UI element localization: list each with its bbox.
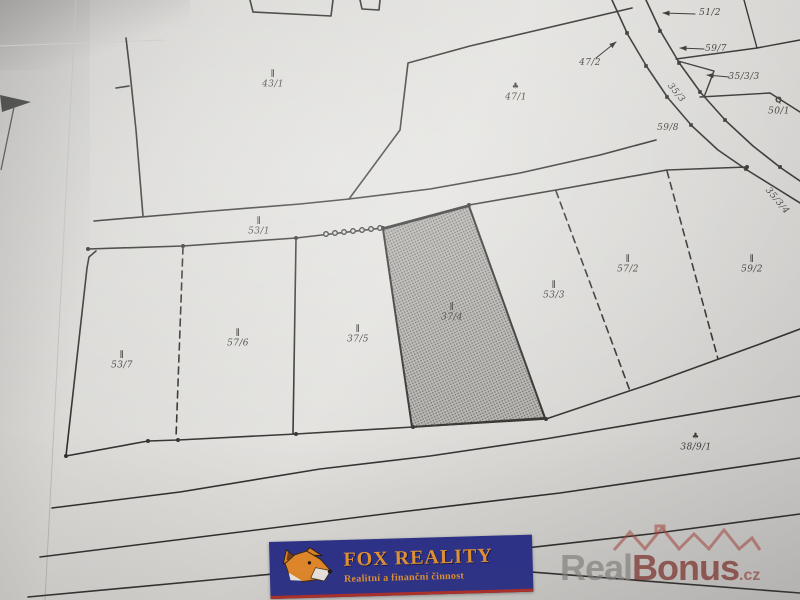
upper-parcel-boundaries — [116, 8, 632, 216]
road-35-3 — [612, 0, 800, 203]
highlighted-parcel-37-4 — [383, 206, 545, 427]
cadastral-map-photo: ∥ 43/1 ♣ 47/1 ∥ 53/1 ∥ 53/7 ∥ 57/6 ∥ 37/… — [0, 0, 800, 600]
building-outlines — [250, 0, 380, 16]
small-parcel-boundaries — [676, 0, 800, 112]
survey-point-circles — [324, 226, 383, 237]
label-arrows — [596, 13, 729, 77]
fox-icon — [281, 544, 336, 591]
paper-creases — [0, 0, 165, 600]
map-line-work — [0, 0, 800, 600]
logo-subtitle: Realitní a finanční činnost — [344, 570, 494, 585]
logo-title: FOX REALITY — [343, 545, 493, 572]
fox-reality-logo-banner: FOX REALITY Realitní a finanční činnost — [269, 535, 533, 599]
logo-text-block: FOX REALITY Realitní a finanční činnost — [343, 545, 493, 585]
